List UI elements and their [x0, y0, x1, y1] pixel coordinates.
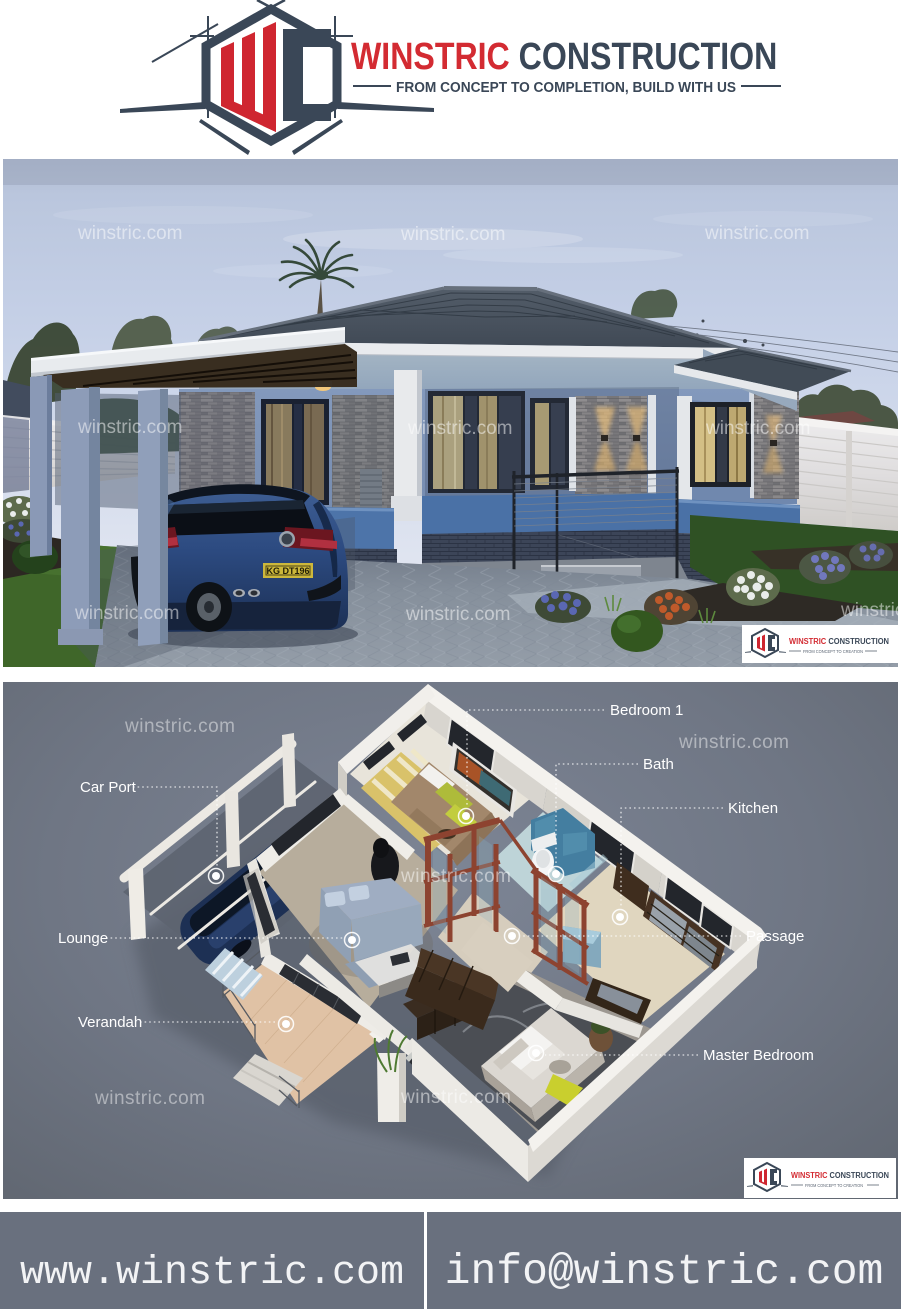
svg-text:winstric.com: winstric.com: [400, 866, 512, 887]
svg-text:winstric.com: winstric.com: [704, 223, 810, 244]
svg-text:winstric.com: winstric.com: [77, 417, 183, 438]
svg-text:winstric.com: winstric.com: [840, 600, 898, 621]
svg-text:winstric.com: winstric.com: [705, 418, 811, 439]
svg-text:FROM CONCEPT TO CREATION: FROM CONCEPT TO CREATION: [803, 649, 863, 654]
svg-text:winstric.com: winstric.com: [405, 604, 511, 625]
svg-text:winstric.com: winstric.com: [94, 1088, 206, 1109]
svg-text:Passage: Passage: [746, 928, 804, 945]
svg-text:winstric.com: winstric.com: [407, 418, 513, 439]
svg-text:Bath: Bath: [643, 756, 674, 773]
svg-text:KG DT196: KG DT196: [266, 566, 309, 576]
svg-text:WINSTRIC CONSTRUCTION: WINSTRIC CONSTRUCTION: [791, 1171, 889, 1180]
svg-text:winstric.com: winstric.com: [77, 223, 183, 244]
svg-text:Lounge: Lounge: [58, 930, 108, 947]
svg-text:Car Port: Car Port: [80, 779, 137, 796]
svg-text:Kitchen: Kitchen: [728, 800, 778, 817]
svg-text:winstric.com: winstric.com: [400, 224, 506, 245]
svg-text:winstric.com: winstric.com: [74, 603, 180, 624]
svg-text:winstric.com: winstric.com: [400, 1087, 512, 1108]
svg-text:FROM CONCEPT TO CREATION: FROM CONCEPT TO CREATION: [805, 1183, 863, 1188]
svg-text:winstric.com: winstric.com: [678, 732, 790, 753]
svg-text:Master Bedroom: Master Bedroom: [703, 1047, 814, 1064]
svg-text:Bedroom 1: Bedroom 1: [610, 702, 683, 719]
svg-text:winstric.com: winstric.com: [124, 716, 236, 737]
svg-text:WINSTRIC CONSTRUCTION: WINSTRIC CONSTRUCTION: [789, 637, 889, 646]
svg-text:Verandah: Verandah: [78, 1014, 142, 1031]
